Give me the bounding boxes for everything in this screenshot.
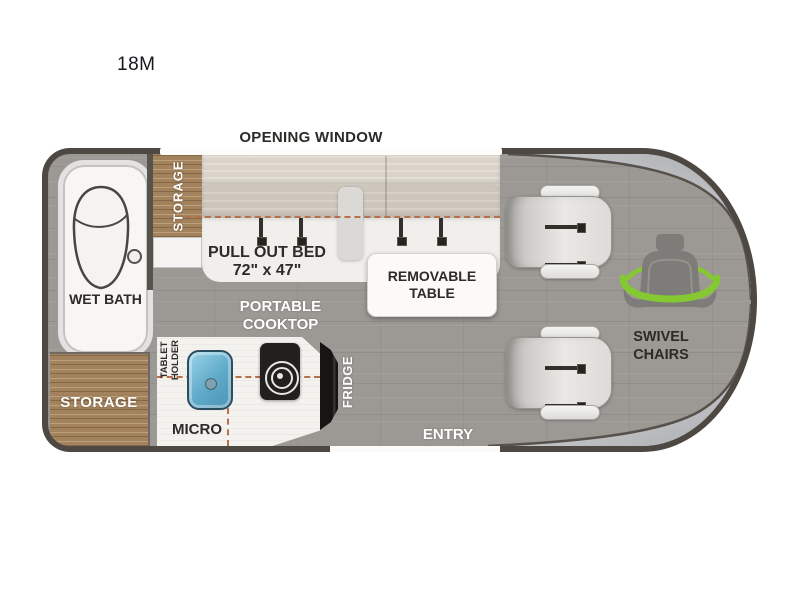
floorplan-page: 18M OPENING WINDOW WET — [0, 0, 800, 600]
opening-window — [160, 148, 502, 155]
removable-table: REMOVABLE TABLE — [367, 253, 497, 317]
wet-bath: WET BATH — [58, 160, 153, 358]
portable-cooktop-label: PORTABLE COOKTOP — [208, 298, 353, 334]
seatbelt-icon — [259, 218, 263, 240]
wet-bath-label: WET BATH — [63, 291, 148, 308]
bed-cushion-seam — [385, 156, 387, 216]
bed-label: PULL OUT BED 72" x 47" — [187, 244, 347, 280]
seatbelt-icon — [545, 225, 579, 229]
rear-storage-label: STORAGE — [50, 394, 148, 411]
upper-storage-cabinet: STORAGE — [153, 154, 204, 237]
removable-table-label: REMOVABLE TABLE — [377, 268, 487, 302]
rear-storage-cabinet: STORAGE — [50, 352, 150, 446]
faucet-icon — [205, 378, 217, 390]
armrest — [540, 264, 600, 279]
micro-label: MICRO — [157, 422, 237, 437]
bed-pullout-dashed-line — [185, 216, 500, 218]
seatbelt-icon — [545, 366, 579, 370]
seatbelt-icon — [439, 218, 443, 240]
chair-seat — [506, 196, 612, 268]
drain-icon — [127, 249, 142, 264]
floorplan-title: 18M — [117, 54, 155, 76]
sink — [187, 350, 233, 410]
burner-center — [277, 373, 283, 379]
armrest — [540, 405, 600, 420]
bed-back-cushion — [202, 154, 500, 186]
seatbelt-icon — [399, 218, 403, 240]
toilet-icon — [68, 181, 134, 301]
bed-size-label: 72" x 47" — [233, 262, 302, 279]
opening-window-label: OPENING WINDOW — [211, 129, 411, 147]
swivel-chairs-label: SWIVEL CHAIRS — [616, 328, 706, 364]
entry-door-opening — [330, 446, 500, 452]
entry-label: ENTRY — [403, 426, 493, 444]
swivel-seat-icon — [620, 232, 720, 320]
swivel-chair-passenger — [506, 185, 614, 279]
fridge — [320, 342, 338, 430]
tablet-holder-label: TABLET HOLDER — [159, 333, 183, 387]
upper-storage-label: STORAGE — [170, 160, 185, 231]
bed-label-line1: PULL OUT BED — [208, 244, 326, 261]
seatbelt-icon — [299, 218, 303, 240]
swivel-chair-driver — [506, 326, 614, 420]
fridge-label: FRIDGE — [340, 342, 354, 422]
cooktop-burner-icon — [260, 343, 300, 400]
van-outline: WET BATH STORAGE STORAGE PULL OUT BED 72… — [42, 148, 757, 452]
chair-seat — [506, 337, 612, 409]
